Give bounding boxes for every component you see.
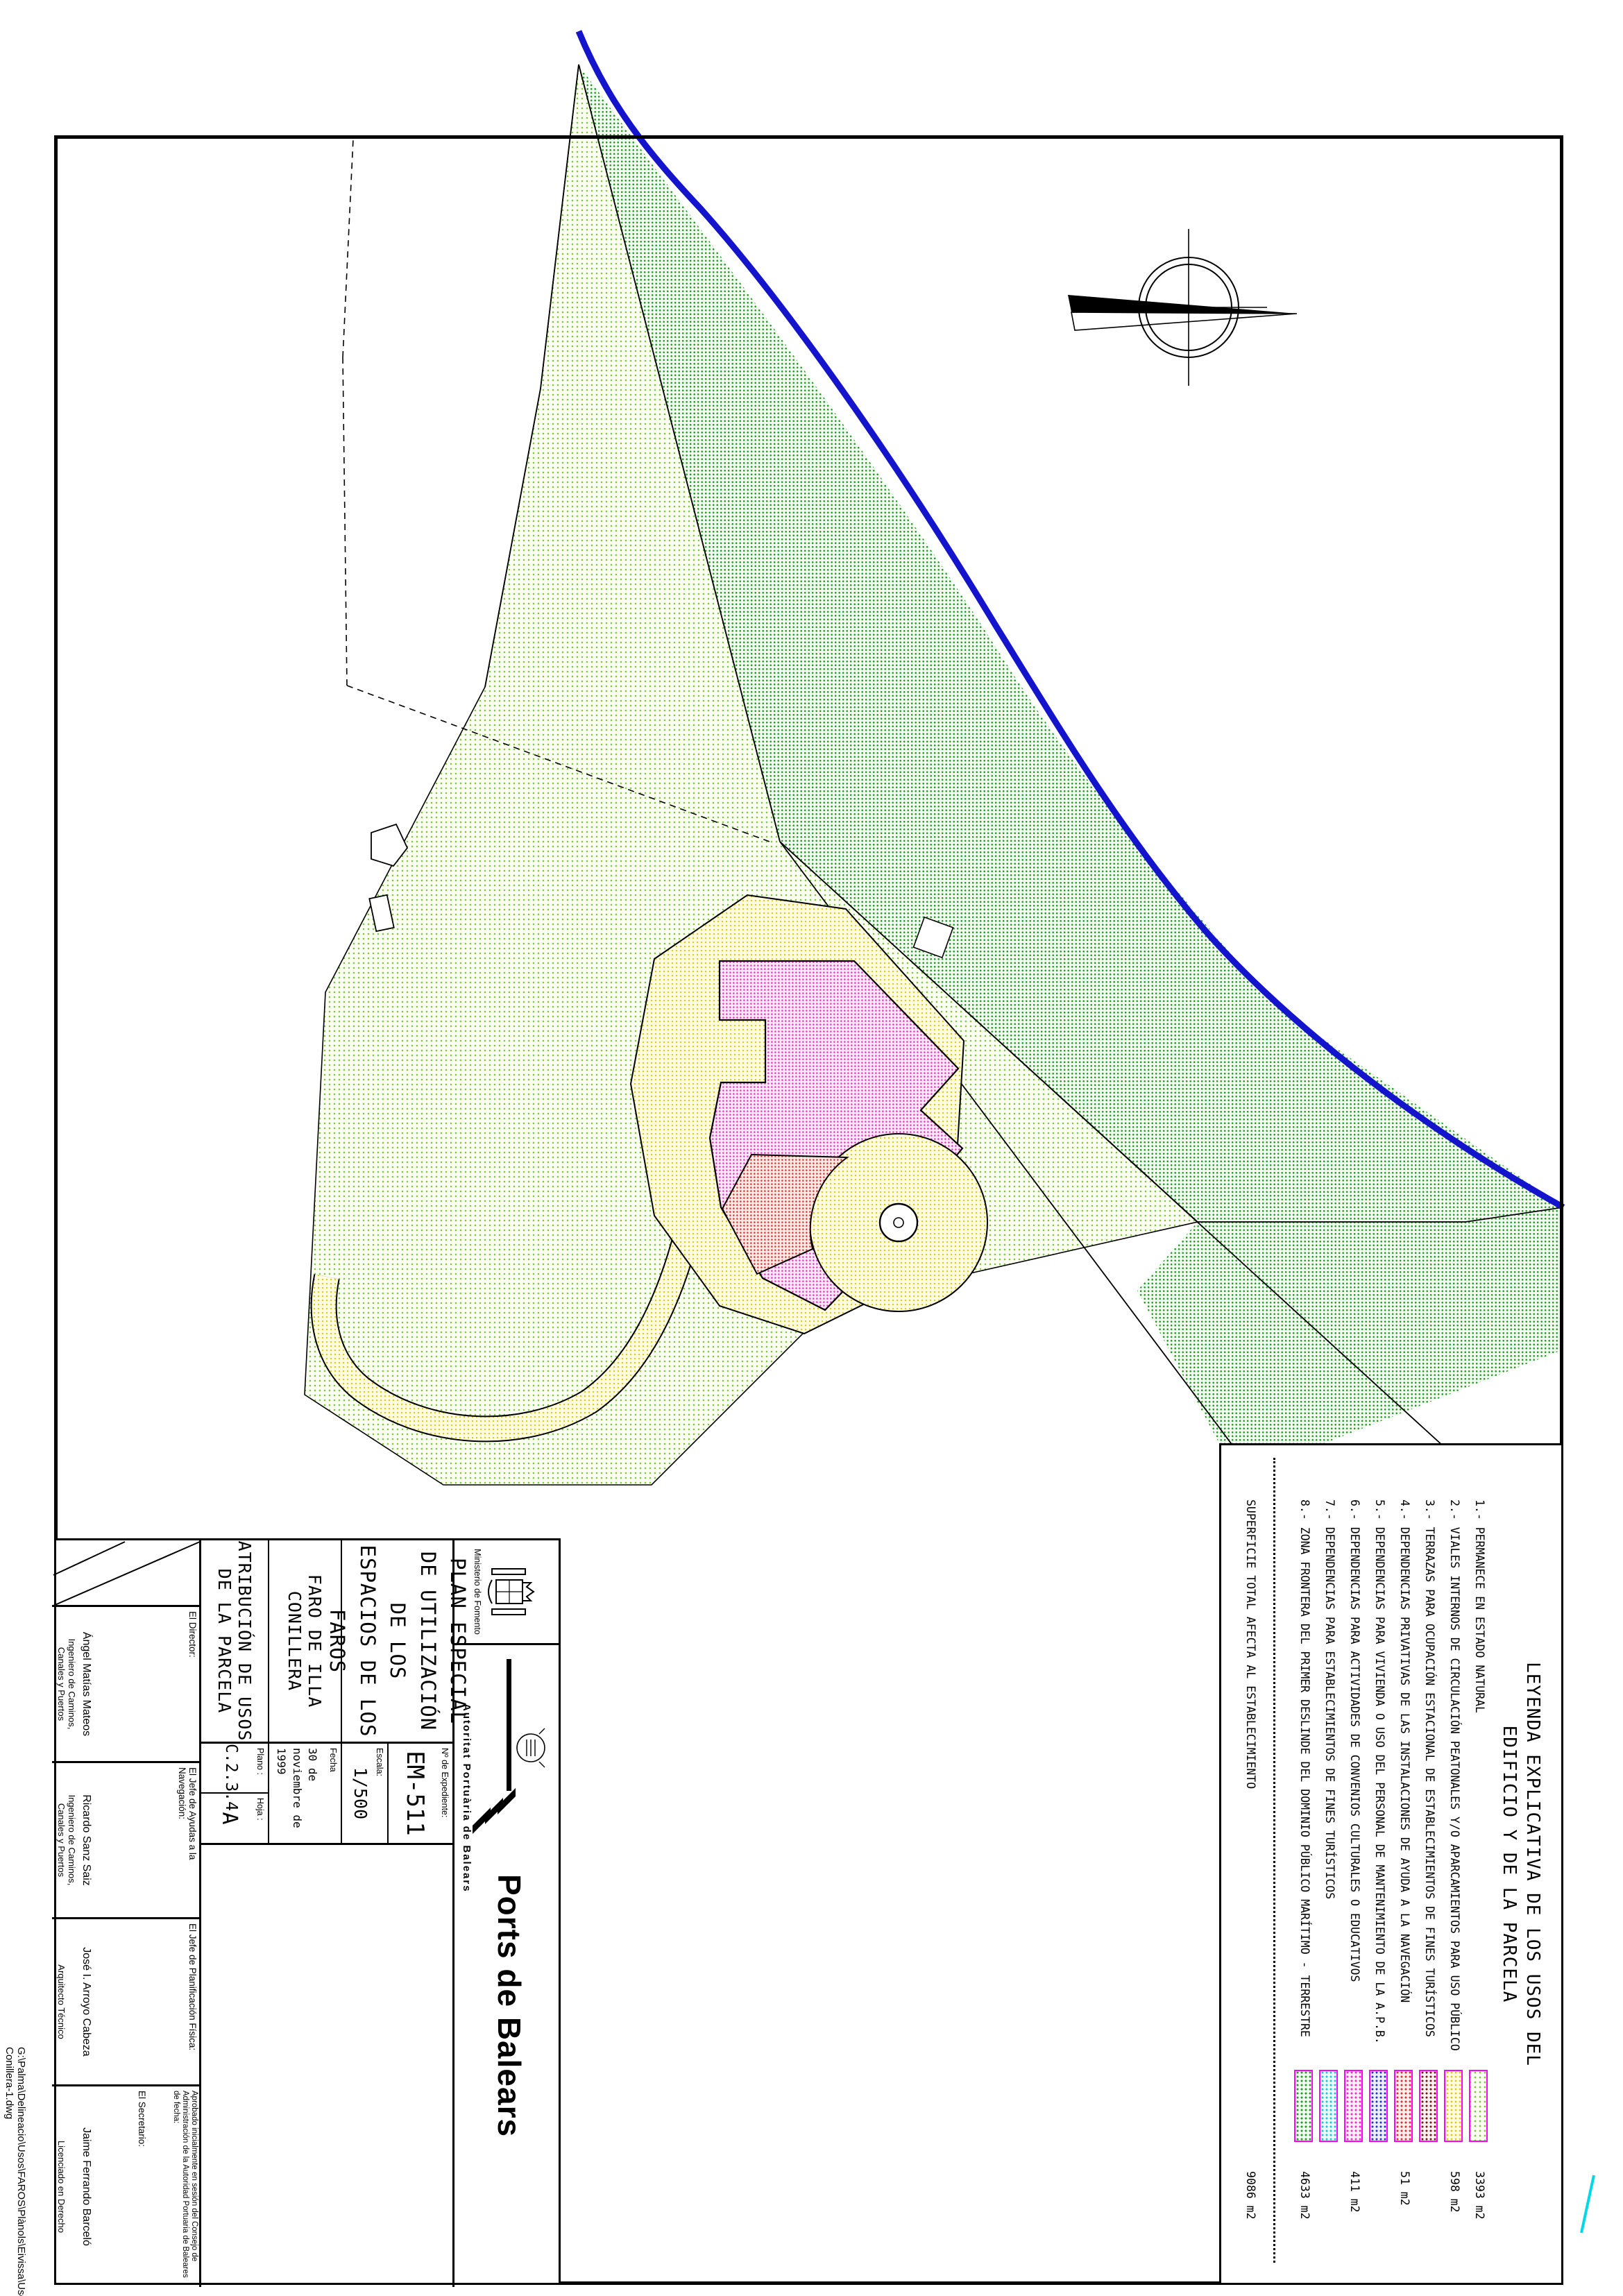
plan-title-2: DE LOS (382, 1603, 413, 1680)
signature-planificacion: El Jefe de Planificación Física: José I.… (52, 1919, 201, 2084)
swatch-estado-natural (1469, 2070, 1488, 2142)
legend-box: LEYENDA EXPLICATIVA DE LOS USOS DEL EDIF… (1219, 1443, 1563, 2285)
legend-item-6: 6.- DEPENDENCIAS PARA ACTIVIDADES DE CON… (1341, 1445, 1364, 2283)
site-name: FARO DE ILLA CONILLERA (285, 1540, 325, 1742)
escala-label: Escala: (375, 1748, 384, 1776)
fecha-value: 30 de noviembre de 1999 (273, 1748, 320, 1838)
legend-value-8: 4633 m2 (1298, 2171, 1311, 2220)
escala-value: 1/500 (350, 1744, 371, 1843)
legend-item-1: 1.- PERMANECE EN ESTADO NATURAL 3393 m2 (1465, 1445, 1489, 2283)
swatch-convenios (1344, 2070, 1363, 2142)
legend-total-row: SUPERFICIE TOTAL AFECTA AL ESTABLECIMIEN… (1237, 1445, 1260, 2283)
plano-label: Plano : (255, 1748, 265, 1775)
legend-value-1: 3393 m2 (1473, 2171, 1486, 2220)
legend-value-2: 598 m2 (1448, 2171, 1461, 2213)
apb-waves-icon (468, 1659, 517, 1867)
signature-director: El Director: Ángel Matías Mateos Ingenie… (52, 1607, 201, 1761)
expediente-value: EM-511 (401, 1744, 429, 1843)
landscape-drawing-sheet: LEYENDA EXPLICATIVA DE LOS USOS DEL EDIF… (0, 0, 1623, 2296)
compass-rose (1068, 229, 1297, 386)
swatch-navegacion (1394, 2070, 1413, 2142)
fecha-cell: Fecha 30 de noviembre de 1999 (269, 1744, 341, 1843)
plan-title-cell: PLAN ESPECIAL DE UTILIZACIÓN DE LOS ESPA… (342, 1540, 452, 1742)
escala-cell: Escala: 1/500 (342, 1744, 387, 1843)
legend-item-3: 3.- TERRAZAS PARA OCUPACIÓN ESTACIONAL D… (1416, 1445, 1439, 2283)
file-path-note: G:\Palma\Delineacio\Usos\FAROS\Plànols\E… (3, 2047, 27, 2296)
swatch-terrazas (1419, 2070, 1438, 2142)
hoja-cell: Hoja : A (201, 1794, 268, 1843)
legend-item-4: 4.- DEPENDENCIAS PRIVATIVAS DE LAS INSTA… (1391, 1445, 1414, 2283)
legend-item-2: 2.- VIALES INTERNOS DE CIRCULACIÓN PEATO… (1441, 1445, 1464, 2283)
expediente-label: Nº de Expediente: (440, 1748, 450, 1817)
plano-value: C.2.3.4. (222, 1744, 240, 1792)
sheet-subject: ATRIBUCIÓN DE USOS DE LA PARCELA (214, 1540, 255, 1742)
approval-note: Aprobado inicialmente en sesión del Cons… (171, 2091, 198, 2278)
signature-secretario: Aprobado inicialmente en sesión del Cons… (52, 2086, 201, 2287)
crossed-cell (52, 1540, 201, 1607)
swatch-deslinde (1294, 2070, 1313, 2142)
legend-item-7: 7.- DEPENDENCIAS PARA ESTABLECIMIENTOS D… (1316, 1445, 1339, 2283)
site-cell: FARO DE ILLA CONILLERA (269, 1540, 341, 1742)
hoja-value: A (217, 1794, 241, 1843)
legend-total-value: 9086 m2 (1244, 2171, 1257, 2220)
legend-separator (1273, 1458, 1275, 2263)
swatch-turisticos (1319, 2070, 1338, 2142)
legend-item-5: 5.- DEPENDENCIAS PARA VIVIENDA O USO DEL… (1366, 1445, 1389, 2283)
legend-value-4: 51 m2 (1398, 2171, 1411, 2206)
swatch-viales (1444, 2070, 1463, 2142)
coastline-corner-segment (1581, 2175, 1594, 2233)
spain-coat-of-arms-icon (482, 1566, 541, 1617)
title-block: Ministerio de Fomento Ports de Balears A… (54, 1538, 561, 2285)
plan-title-1: PLAN ESPECIAL DE UTILIZACIÓN (412, 1540, 473, 1742)
fecha-label: Fecha (328, 1748, 338, 1772)
signature-ayudas: El Jefe de Ayudas a la Navegación: Ricar… (52, 1763, 201, 1917)
lighthouse-tower (880, 1204, 917, 1241)
legend-total-label: SUPERFICIE TOTAL AFECTA AL ESTABLECIMIEN… (1244, 1499, 1257, 1789)
plano-cell: Plano : C.2.3.4. (201, 1744, 268, 1792)
legend-title-1: LEYENDA EXPLICATIVA DE LOS USOS DEL (1522, 1445, 1543, 2283)
ministry-label: Ministerio de Fomento (473, 1549, 482, 1635)
authority-name: Ports de Balears (491, 1874, 528, 2137)
legend-title-2: EDIFICIO Y DE LA PARCELA (1499, 1445, 1520, 2283)
legend-value-6: 411 m2 (1348, 2171, 1361, 2213)
swatch-vivienda (1369, 2070, 1388, 2142)
scanned-plan-sheet: LEYENDA EXPLICATIVA DE LOS USOS DEL EDIF… (0, 0, 1623, 2296)
expediente-cell: Nº de Expediente: EM-511 (389, 1744, 452, 1843)
legend-item-8: 8.- ZONA FRONTERA DEL PRIMER DESLINDE DE… (1291, 1445, 1314, 2283)
subject-cell: ATRIBUCIÓN DE USOS DE LA PARCELA (201, 1540, 268, 1742)
hoja-label: Hoja : (255, 1798, 265, 1821)
